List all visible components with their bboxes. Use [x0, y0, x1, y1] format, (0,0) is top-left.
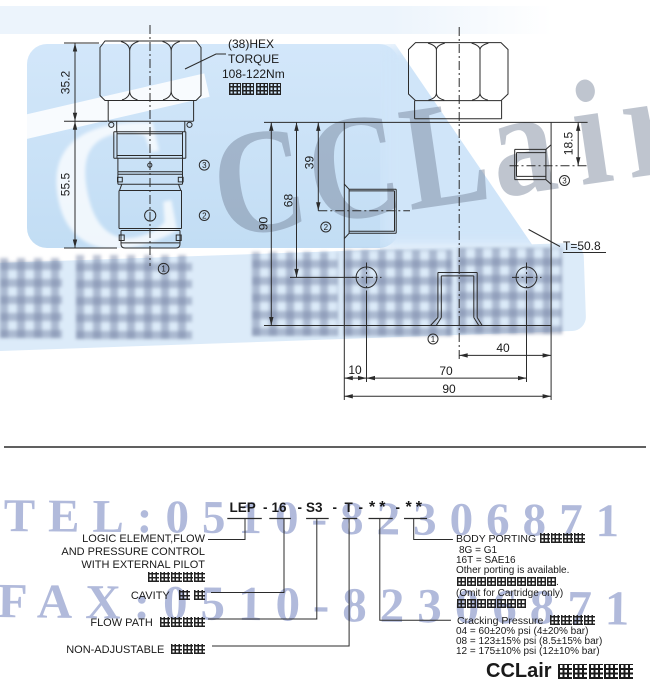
svg-text:3: 3	[202, 161, 207, 170]
svg-text:2: 2	[202, 211, 207, 220]
svg-text:1: 1	[161, 265, 166, 274]
svg-text:3: 3	[562, 176, 567, 185]
svg-text:2: 2	[324, 223, 329, 232]
svg-text:1: 1	[431, 335, 436, 344]
